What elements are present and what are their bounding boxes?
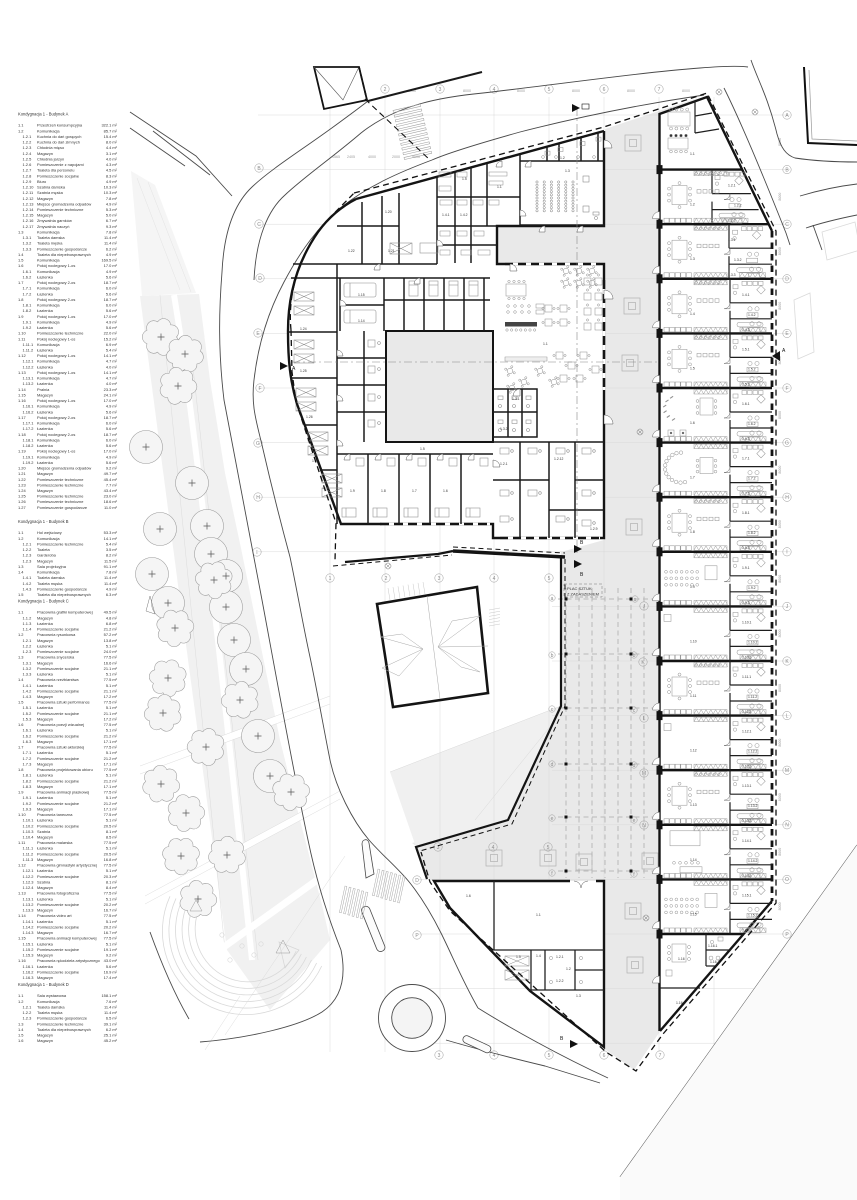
svg-text:Komunikacja: Komunikacja — [37, 999, 60, 1004]
svg-text:1.8.3: 1.8.3 — [742, 546, 750, 550]
svg-text:21.1 m²: 21.1 m² — [104, 666, 118, 671]
svg-text:1.1: 1.1 — [18, 530, 23, 535]
svg-text:1.5: 1.5 — [690, 366, 695, 370]
svg-text:1.2.2: 1.2.2 — [556, 979, 564, 983]
svg-text:11.0 m²: 11.0 m² — [104, 505, 118, 510]
svg-text:6.5 m²: 6.5 m² — [106, 1016, 118, 1021]
svg-text:Pomieszczenie techniczne: Pomieszczenie techniczne — [37, 494, 84, 499]
svg-text:1.19.1: 1.19.1 — [23, 454, 34, 459]
svg-text:Szatnia: Szatnia — [37, 880, 51, 885]
svg-text:Magazyn: Magazyn — [37, 761, 53, 766]
svg-text:1.15: 1.15 — [18, 936, 26, 941]
svg-text:1.4.2: 1.4.2 — [460, 213, 468, 217]
svg-text:Pomieszczenie techniczne: Pomieszczenie techniczne — [37, 477, 84, 482]
svg-text:5.6 m²: 5.6 m² — [106, 964, 118, 969]
svg-text:Magazyn: Magazyn — [37, 638, 53, 643]
svg-text:1.12.2: 1.12.2 — [748, 750, 758, 754]
svg-text:1.3.2: 1.3.2 — [23, 241, 32, 246]
svg-text:Toaleta męska: Toaleta męska — [37, 1010, 63, 1015]
svg-text:5: 5 — [548, 576, 551, 582]
svg-text:1.9.1: 1.9.1 — [742, 566, 750, 570]
svg-text:F: F — [785, 386, 788, 392]
svg-text:1.3.2: 1.3.2 — [500, 427, 508, 431]
svg-text:1.9.1: 1.9.1 — [23, 319, 32, 324]
svg-text:Szatnia: Szatnia — [37, 829, 51, 834]
svg-text:20.5 m²: 20.5 m² — [104, 851, 118, 856]
svg-text:Komunikacja: Komunikacja — [37, 230, 60, 235]
svg-text:1.6.2: 1.6.2 — [23, 733, 32, 738]
svg-text:Pomieszczenie socjalne: Pomieszczenie socjalne — [37, 947, 80, 952]
svg-text:1.7.1: 1.7.1 — [23, 286, 32, 291]
svg-text:5: 5 — [548, 87, 551, 93]
svg-text:1.14: 1.14 — [690, 858, 697, 862]
svg-text:22.0 m²: 22.0 m² — [104, 331, 118, 336]
svg-text:5.1 m²: 5.1 m² — [106, 818, 118, 823]
svg-text:18.6 m²: 18.6 m² — [104, 499, 118, 504]
svg-text:Pracownia projektowania ubioru: Pracownia projektowania ubioru — [37, 767, 93, 772]
svg-text:Komunikacja: Komunikacja — [37, 570, 60, 575]
svg-text:6.8 m²: 6.8 m² — [106, 621, 118, 626]
svg-text:Pokój noclegowy 2-os: Pokój noclegowy 2-os — [37, 280, 75, 285]
svg-text:1.2.3: 1.2.3 — [23, 1016, 33, 1021]
svg-text:1.8.2: 1.8.2 — [23, 308, 32, 313]
svg-text:5.1 m²: 5.1 m² — [106, 705, 118, 710]
svg-text:1.5.3: 1.5.3 — [742, 382, 750, 386]
svg-text:13.8 m²: 13.8 m² — [104, 638, 118, 643]
svg-text:77.5 m²: 77.5 m² — [104, 812, 118, 817]
svg-text:1.21: 1.21 — [388, 249, 395, 253]
svg-text:5.6 m²: 5.6 m² — [106, 426, 118, 431]
svg-text:Łazienka: Łazienka — [37, 896, 54, 901]
svg-text:Z ZADASZENIEM: Z ZADASZENIEM — [567, 592, 599, 597]
svg-text:20.2 m²: 20.2 m² — [104, 924, 118, 929]
svg-text:77.5 m²: 77.5 m² — [104, 722, 118, 727]
svg-text:1.2.2: 1.2.2 — [734, 204, 742, 208]
svg-text:14.1 m²: 14.1 m² — [104, 353, 118, 358]
svg-text:1.4.3: 1.4.3 — [742, 328, 750, 332]
svg-text:1.4.1: 1.4.1 — [442, 213, 450, 217]
svg-text:1.6.2: 1.6.2 — [23, 274, 32, 279]
svg-text:1.10: 1.10 — [690, 639, 697, 643]
svg-text:5.6 m²: 5.6 m² — [106, 460, 118, 465]
svg-text:1.11.2: 1.11.2 — [23, 348, 34, 353]
svg-text:1.2.13: 1.2.13 — [23, 201, 35, 206]
svg-text:Kuchnia do dań zimnych: Kuchnia do dań zimnych — [37, 140, 80, 145]
svg-text:Pomieszczenie socjalne: Pomieszczenie socjalne — [37, 778, 80, 783]
svg-text:1.16.3: 1.16.3 — [676, 1001, 686, 1005]
svg-text:11.4 m²: 11.4 m² — [104, 575, 118, 580]
svg-text:4.9 m²: 4.9 m² — [106, 269, 118, 274]
svg-text:1.7.3: 1.7.3 — [742, 492, 750, 496]
svg-text:Przestrzeń konsumpcyjna: Przestrzeń konsumpcyjna — [37, 123, 83, 128]
svg-text:1.11: 1.11 — [690, 694, 696, 698]
svg-text:L: L — [786, 713, 789, 719]
svg-text:D: D — [785, 277, 789, 283]
svg-text:1.7.3: 1.7.3 — [23, 761, 33, 766]
svg-text:Łazienka: Łazienka — [37, 274, 54, 279]
svg-text:Magazyn: Magazyn — [37, 717, 53, 722]
svg-text:43.4 m²: 43.4 m² — [104, 488, 118, 493]
svg-text:O: O — [785, 877, 789, 883]
svg-text:Łazienka: Łazienka — [37, 773, 54, 778]
svg-text:1.19.2: 1.19.2 — [23, 460, 34, 465]
svg-text:21.2 m²: 21.2 m² — [104, 756, 118, 761]
svg-text:5.1 m²: 5.1 m² — [106, 750, 118, 755]
svg-text:1.4.2: 1.4.2 — [23, 688, 32, 693]
svg-text:5.1 m²: 5.1 m² — [106, 846, 118, 851]
svg-text:10.3 m²: 10.3 m² — [104, 190, 118, 195]
svg-text:77.5 m²: 77.5 m² — [104, 655, 118, 660]
svg-text:1.12: 1.12 — [18, 863, 26, 868]
svg-text:4.3 m²: 4.3 m² — [106, 162, 118, 167]
svg-text:Pomieszczenie techniczne: Pomieszczenie techniczne — [37, 331, 84, 336]
svg-text:Pomieszczenie techniczne: Pomieszczenie techniczne — [37, 207, 84, 212]
svg-text:6.0 m²: 6.0 m² — [106, 437, 118, 442]
svg-text:1.13.1: 1.13.1 — [23, 376, 34, 381]
svg-text:Magazyn: Magazyn — [37, 1033, 53, 1038]
svg-text:Sala wystawowa: Sala wystawowa — [37, 993, 67, 998]
svg-text:1.16.1: 1.16.1 — [23, 404, 34, 409]
svg-text:1.10: 1.10 — [18, 331, 26, 336]
svg-text:49.5 m²: 49.5 m² — [104, 610, 118, 615]
svg-text:4.9 m²: 4.9 m² — [106, 252, 118, 257]
svg-text:1.14.2: 1.14.2 — [23, 924, 34, 929]
svg-text:1.6.1: 1.6.1 — [742, 402, 750, 406]
svg-text:1.4: 1.4 — [18, 1027, 24, 1032]
svg-text:5.6 m²: 5.6 m² — [106, 409, 118, 414]
svg-text:Pracownia rękodzieła artystycz: Pracownia rękodzieła artystycznego — [37, 958, 101, 963]
svg-text:Pomieszczenie socjalne: Pomieszczenie socjalne — [37, 733, 80, 738]
svg-text:G: G — [256, 441, 260, 447]
svg-text:1.11.1: 1.11.1 — [742, 675, 751, 679]
svg-text:1.2: 1.2 — [560, 156, 565, 160]
svg-text:5.1 m²: 5.1 m² — [106, 773, 118, 778]
svg-text:1.26: 1.26 — [306, 415, 313, 419]
svg-text:1.8.2: 1.8.2 — [748, 531, 756, 535]
svg-text:Toaleta dla niepełnosprawnych: Toaleta dla niepełnosprawnych — [37, 1027, 91, 1032]
svg-text:1.22: 1.22 — [348, 249, 355, 253]
svg-text:1.12.3: 1.12.3 — [742, 765, 752, 769]
svg-text:8000: 8000 — [778, 411, 782, 419]
svg-text:16.9 m²: 16.9 m² — [104, 969, 118, 974]
svg-text:1.3.3: 1.3.3 — [23, 672, 33, 677]
svg-text:1.6.3: 1.6.3 — [742, 437, 750, 441]
svg-text:7.8 m²: 7.8 m² — [106, 570, 118, 575]
svg-text:Łazienka: Łazienka — [37, 381, 54, 386]
svg-text:D: D — [258, 276, 262, 282]
svg-text:21.2 m²: 21.2 m² — [104, 627, 118, 632]
svg-text:b: b — [551, 653, 554, 659]
svg-text:Pokój noclegowy 2-os: Pokój noclegowy 2-os — [37, 432, 75, 437]
svg-text:1.9.2: 1.9.2 — [23, 801, 32, 806]
svg-text:Łazienka: Łazienka — [37, 460, 54, 465]
svg-text:77.5 m²: 77.5 m² — [104, 700, 118, 705]
svg-text:Komunikacja: Komunikacja — [37, 454, 60, 459]
svg-text:8000: 8000 — [778, 575, 782, 583]
svg-text:17.4 m²: 17.4 m² — [104, 975, 118, 980]
svg-text:20.5 m²: 20.5 m² — [104, 823, 118, 828]
svg-text:1.6.1: 1.6.1 — [23, 728, 32, 733]
svg-text:Chłodnia jarzyn: Chłodnia jarzyn — [37, 156, 64, 161]
svg-text:Magazyn: Magazyn — [37, 975, 53, 980]
svg-text:18.7 m²: 18.7 m² — [104, 432, 118, 437]
svg-text:8000: 8000 — [778, 739, 782, 747]
svg-text:Magazyn: Magazyn — [37, 558, 53, 563]
svg-text:5.1 m²: 5.1 m² — [106, 941, 118, 946]
svg-text:Magazyn: Magazyn — [37, 885, 53, 890]
svg-text:1.13.2: 1.13.2 — [23, 381, 34, 386]
svg-text:Pomieszczenie socjalne: Pomieszczenie socjalne — [37, 801, 80, 806]
svg-text:Komunikacja: Komunikacja — [37, 128, 60, 133]
svg-text:1.11.2: 1.11.2 — [23, 851, 34, 856]
svg-text:21.2 m²: 21.2 m² — [104, 778, 118, 783]
svg-text:Łazienka: Łazienka — [37, 325, 54, 330]
svg-text:6.2 m²: 6.2 m² — [106, 246, 118, 251]
svg-text:8.0 m²: 8.0 m² — [106, 140, 118, 145]
svg-text:Zmywalnia naczyń: Zmywalnia naczyń — [37, 224, 69, 229]
svg-text:1.9.2: 1.9.2 — [23, 325, 32, 330]
svg-text:Szatnia damska: Szatnia damska — [37, 185, 66, 190]
svg-text:17.1 m²: 17.1 m² — [104, 761, 118, 766]
svg-text:1.11.3: 1.11.3 — [742, 710, 751, 714]
svg-text:1.9: 1.9 — [690, 585, 695, 589]
svg-text:1.7: 1.7 — [412, 489, 417, 493]
svg-text:1.4.1: 1.4.1 — [742, 293, 750, 297]
svg-text:5.6 m²: 5.6 m² — [106, 291, 118, 296]
svg-text:1.2.9: 1.2.9 — [23, 179, 32, 184]
svg-text:1.16.1: 1.16.1 — [708, 944, 718, 948]
svg-text:Pokój noclegowy 1-os: Pokój noclegowy 1-os — [37, 263, 75, 268]
svg-text:5.6 m²: 5.6 m² — [106, 274, 118, 279]
svg-text:Łazienka: Łazienka — [37, 941, 54, 946]
svg-text:Toaleta męska: Toaleta męska — [37, 241, 63, 246]
svg-text:1.11: 1.11 — [18, 336, 25, 341]
svg-text:1.5: 1.5 — [462, 177, 467, 181]
svg-text:Łazienka: Łazienka — [37, 308, 54, 313]
svg-text:43.0 m²: 43.0 m² — [104, 958, 118, 963]
svg-text:Pracownia taneczna: Pracownia taneczna — [37, 812, 73, 817]
svg-text:1.4.1: 1.4.1 — [23, 575, 32, 580]
svg-text:1.12.2: 1.12.2 — [23, 874, 34, 879]
svg-text:19.1 m²: 19.1 m² — [104, 947, 118, 952]
svg-text:1.14.3: 1.14.3 — [23, 930, 35, 935]
svg-text:1.2.3: 1.2.3 — [23, 553, 33, 558]
svg-text:5.1 m²: 5.1 m² — [106, 896, 118, 901]
svg-text:4.9 m²: 4.9 m² — [106, 319, 118, 324]
svg-text:4.9 m²: 4.9 m² — [106, 454, 118, 459]
svg-text:Łazienka: Łazienka — [37, 868, 54, 873]
svg-text:Magazyn: Magazyn — [37, 784, 53, 789]
svg-text:23.0 m²: 23.0 m² — [104, 494, 118, 499]
svg-text:Chłodnia mięso: Chłodnia mięso — [37, 145, 65, 150]
svg-text:1.13.2: 1.13.2 — [23, 902, 34, 907]
svg-text:Magazyn: Magazyn — [37, 1038, 53, 1043]
svg-text:1.9: 1.9 — [350, 489, 355, 493]
svg-text:3.1 m²: 3.1 m² — [106, 151, 118, 156]
svg-text:39.1 m²: 39.1 m² — [104, 1021, 118, 1026]
svg-text:Kondygnacja 1 - Budynek B: Kondygnacja 1 - Budynek B — [18, 519, 69, 524]
svg-text:1.2.11: 1.2.11 — [23, 190, 34, 195]
svg-text:Pracownia rysunkowa: Pracownia rysunkowa — [37, 632, 76, 637]
svg-text:Magazyn: Magazyn — [37, 196, 53, 201]
svg-text:Pomieszczenie socjalne: Pomieszczenie socjalne — [37, 823, 80, 828]
svg-text:1.12.1: 1.12.1 — [742, 730, 752, 734]
svg-text:Komunikacja: Komunikacja — [37, 421, 60, 426]
svg-text:17.0 m²: 17.0 m² — [104, 314, 118, 319]
svg-text:1.8: 1.8 — [381, 489, 386, 493]
svg-text:1.18.2: 1.18.2 — [23, 443, 34, 448]
svg-text:2405: 2405 — [347, 155, 355, 159]
svg-text:Toaleta dla niepełnosprawnych: Toaleta dla niepełnosprawnych — [37, 592, 91, 597]
svg-text:1.24: 1.24 — [300, 327, 307, 331]
svg-text:H: H — [785, 495, 789, 501]
svg-text:9.3 m²: 9.3 m² — [106, 224, 118, 229]
svg-text:1.3.3: 1.3.3 — [728, 273, 736, 277]
svg-text:1.4: 1.4 — [18, 252, 24, 257]
svg-text:8000: 8000 — [682, 89, 690, 93]
svg-text:2: 2 — [384, 87, 387, 93]
svg-text:Pomieszczenie socjalne: Pomieszczenie socjalne — [37, 969, 80, 974]
svg-text:Pomieszczenie techniczne: Pomieszczenie techniczne — [37, 482, 84, 487]
svg-text:1.2.15: 1.2.15 — [23, 213, 35, 218]
svg-text:169.5 m²: 169.5 m² — [101, 258, 117, 263]
svg-text:18.7 m²: 18.7 m² — [104, 415, 118, 420]
svg-text:18.7 m²: 18.7 m² — [104, 280, 118, 285]
svg-text:6.0 m²: 6.0 m² — [106, 421, 118, 426]
svg-text:a: a — [551, 596, 554, 602]
svg-text:16.6 m²: 16.6 m² — [104, 660, 118, 665]
svg-text:5.0 m²: 5.0 m² — [106, 213, 118, 218]
svg-text:Pracownia rzeźbiarstwa: Pracownia rzeźbiarstwa — [37, 677, 79, 682]
svg-text:15.4 m²: 15.4 m² — [104, 134, 118, 139]
svg-text:1.11.1: 1.11.1 — [23, 342, 34, 347]
svg-text:1.13: 1.13 — [18, 370, 26, 375]
svg-text:17.0 m²: 17.0 m² — [104, 398, 118, 403]
svg-text:16.8 m²: 16.8 m² — [104, 857, 118, 862]
svg-text:Łazienka: Łazienka — [37, 291, 54, 296]
svg-text:Pokój noclegowy 2-os: Pokój noclegowy 2-os — [37, 297, 75, 302]
svg-text:1.1: 1.1 — [497, 185, 502, 189]
svg-text:21.1 m²: 21.1 m² — [104, 688, 118, 693]
svg-text:8000: 8000 — [517, 89, 525, 93]
svg-text:8.3 m²: 8.3 m² — [106, 173, 118, 178]
svg-text:1.16.3: 1.16.3 — [23, 975, 35, 980]
svg-text:Komunikacja: Komunikacja — [37, 286, 60, 291]
svg-text:1.15.2: 1.15.2 — [23, 947, 34, 952]
svg-text:1.9: 1.9 — [18, 314, 23, 319]
svg-text:1.11.2: 1.11.2 — [748, 695, 757, 699]
svg-text:Magazyn: Magazyn — [37, 857, 53, 862]
svg-text:1.6.2: 1.6.2 — [748, 422, 756, 426]
svg-text:1.10.4: 1.10.4 — [23, 835, 35, 840]
svg-text:Pracownia fotograficzna: Pracownia fotograficzna — [37, 891, 80, 896]
svg-text:5.1 m²: 5.1 m² — [106, 643, 118, 648]
svg-text:Magazyn: Magazyn — [37, 660, 53, 665]
svg-text:Pomieszczenie techniczne: Pomieszczenie techniczne — [37, 1021, 84, 1026]
svg-text:1.6: 1.6 — [690, 421, 695, 425]
svg-text:17.1 m²: 17.1 m² — [104, 806, 118, 811]
svg-text:1.5: 1.5 — [516, 955, 521, 959]
svg-text:1.16: 1.16 — [18, 958, 26, 963]
svg-text:7.6 m²: 7.6 m² — [106, 999, 118, 1004]
svg-text:1.24: 1.24 — [18, 488, 26, 493]
svg-text:1.8.3: 1.8.3 — [23, 784, 33, 789]
svg-text:1.9.1: 1.9.1 — [23, 795, 32, 800]
svg-text:a: a — [634, 597, 637, 603]
svg-text:1.2.7: 1.2.7 — [23, 168, 32, 173]
svg-text:Pracownia sztuki aktorskiej: Pracownia sztuki aktorskiej — [37, 745, 84, 750]
svg-text:1.11.3: 1.11.3 — [23, 857, 34, 862]
svg-text:8000: 8000 — [778, 520, 782, 528]
svg-text:Łazienka: Łazienka — [37, 919, 54, 924]
svg-text:Pomieszczenie socjalne: Pomieszczenie socjalne — [37, 688, 80, 693]
svg-text:5.6 m²: 5.6 m² — [106, 443, 118, 448]
svg-text:1.2.2: 1.2.2 — [23, 1010, 32, 1015]
svg-text:1: 1 — [329, 576, 332, 582]
svg-text:1.5.2: 1.5.2 — [748, 367, 756, 371]
svg-text:Pomieszczenie z napojami: Pomieszczenie z napojami — [37, 162, 84, 167]
svg-text:8000: 8000 — [778, 684, 782, 692]
svg-text:8000: 8000 — [778, 848, 782, 856]
svg-text:1.3.2: 1.3.2 — [23, 666, 32, 671]
svg-text:Magazyn: Magazyn — [37, 471, 53, 476]
svg-text:1.2.12: 1.2.12 — [554, 457, 564, 461]
svg-text:21.2 m²: 21.2 m² — [104, 801, 118, 806]
svg-text:1.5: 1.5 — [18, 258, 24, 263]
svg-text:1.27: 1.27 — [18, 505, 26, 510]
svg-text:5: 5 — [548, 1053, 551, 1059]
svg-text:G: G — [785, 440, 789, 446]
svg-text:1.5.3: 1.5.3 — [23, 717, 33, 722]
svg-text:M: M — [785, 768, 789, 774]
svg-text:4: 4 — [493, 576, 496, 582]
svg-text:1.6: 1.6 — [18, 1038, 24, 1043]
svg-text:1.2.1: 1.2.1 — [500, 462, 508, 466]
svg-text:1.14: 1.14 — [18, 387, 26, 392]
svg-text:1.14.1: 1.14.1 — [23, 919, 34, 924]
svg-text:1.4: 1.4 — [690, 312, 695, 316]
svg-text:14.1 m²: 14.1 m² — [104, 370, 118, 375]
svg-text:1.3.1: 1.3.1 — [23, 235, 32, 240]
svg-text:4.9 m²: 4.9 m² — [106, 586, 118, 591]
svg-text:8.2 m²: 8.2 m² — [106, 553, 118, 558]
svg-text:8000: 8000 — [572, 89, 580, 93]
svg-text:1.2: 1.2 — [18, 632, 23, 637]
svg-text:Łazienka: Łazienka — [37, 795, 54, 800]
svg-text:5.1 m²: 5.1 m² — [106, 795, 118, 800]
svg-text:Magazyn: Magazyn — [37, 488, 53, 493]
svg-text:1.2.16: 1.2.16 — [23, 218, 35, 223]
svg-text:1.8.1: 1.8.1 — [742, 511, 750, 515]
svg-text:1.8.1: 1.8.1 — [23, 303, 32, 308]
svg-text:1.14.2: 1.14.2 — [748, 859, 758, 863]
svg-text:5.1 m²: 5.1 m² — [106, 672, 118, 677]
svg-text:77.5 m²: 77.5 m² — [104, 913, 118, 918]
svg-text:1.2.6: 1.2.6 — [23, 162, 33, 167]
svg-text:1.15.2: 1.15.2 — [748, 913, 758, 917]
svg-text:Magazyn: Magazyn — [37, 930, 53, 935]
svg-text:1.5.1: 1.5.1 — [742, 347, 750, 351]
svg-text:1.13.3: 1.13.3 — [23, 908, 35, 913]
svg-text:1.15.3: 1.15.3 — [23, 953, 35, 958]
svg-text:8000: 8000 — [778, 793, 782, 801]
svg-text:Toaleta dla personelu: Toaleta dla personelu — [37, 168, 74, 173]
svg-text:Pokój noclegowy 2-os: Pokój noclegowy 2-os — [37, 415, 75, 420]
svg-text:3: 3 — [438, 576, 441, 582]
svg-text:17.0 m²: 17.0 m² — [104, 449, 118, 454]
svg-text:Pomieszczenie socjalne: Pomieszczenie socjalne — [37, 874, 80, 879]
svg-text:8000: 8000 — [778, 466, 782, 474]
